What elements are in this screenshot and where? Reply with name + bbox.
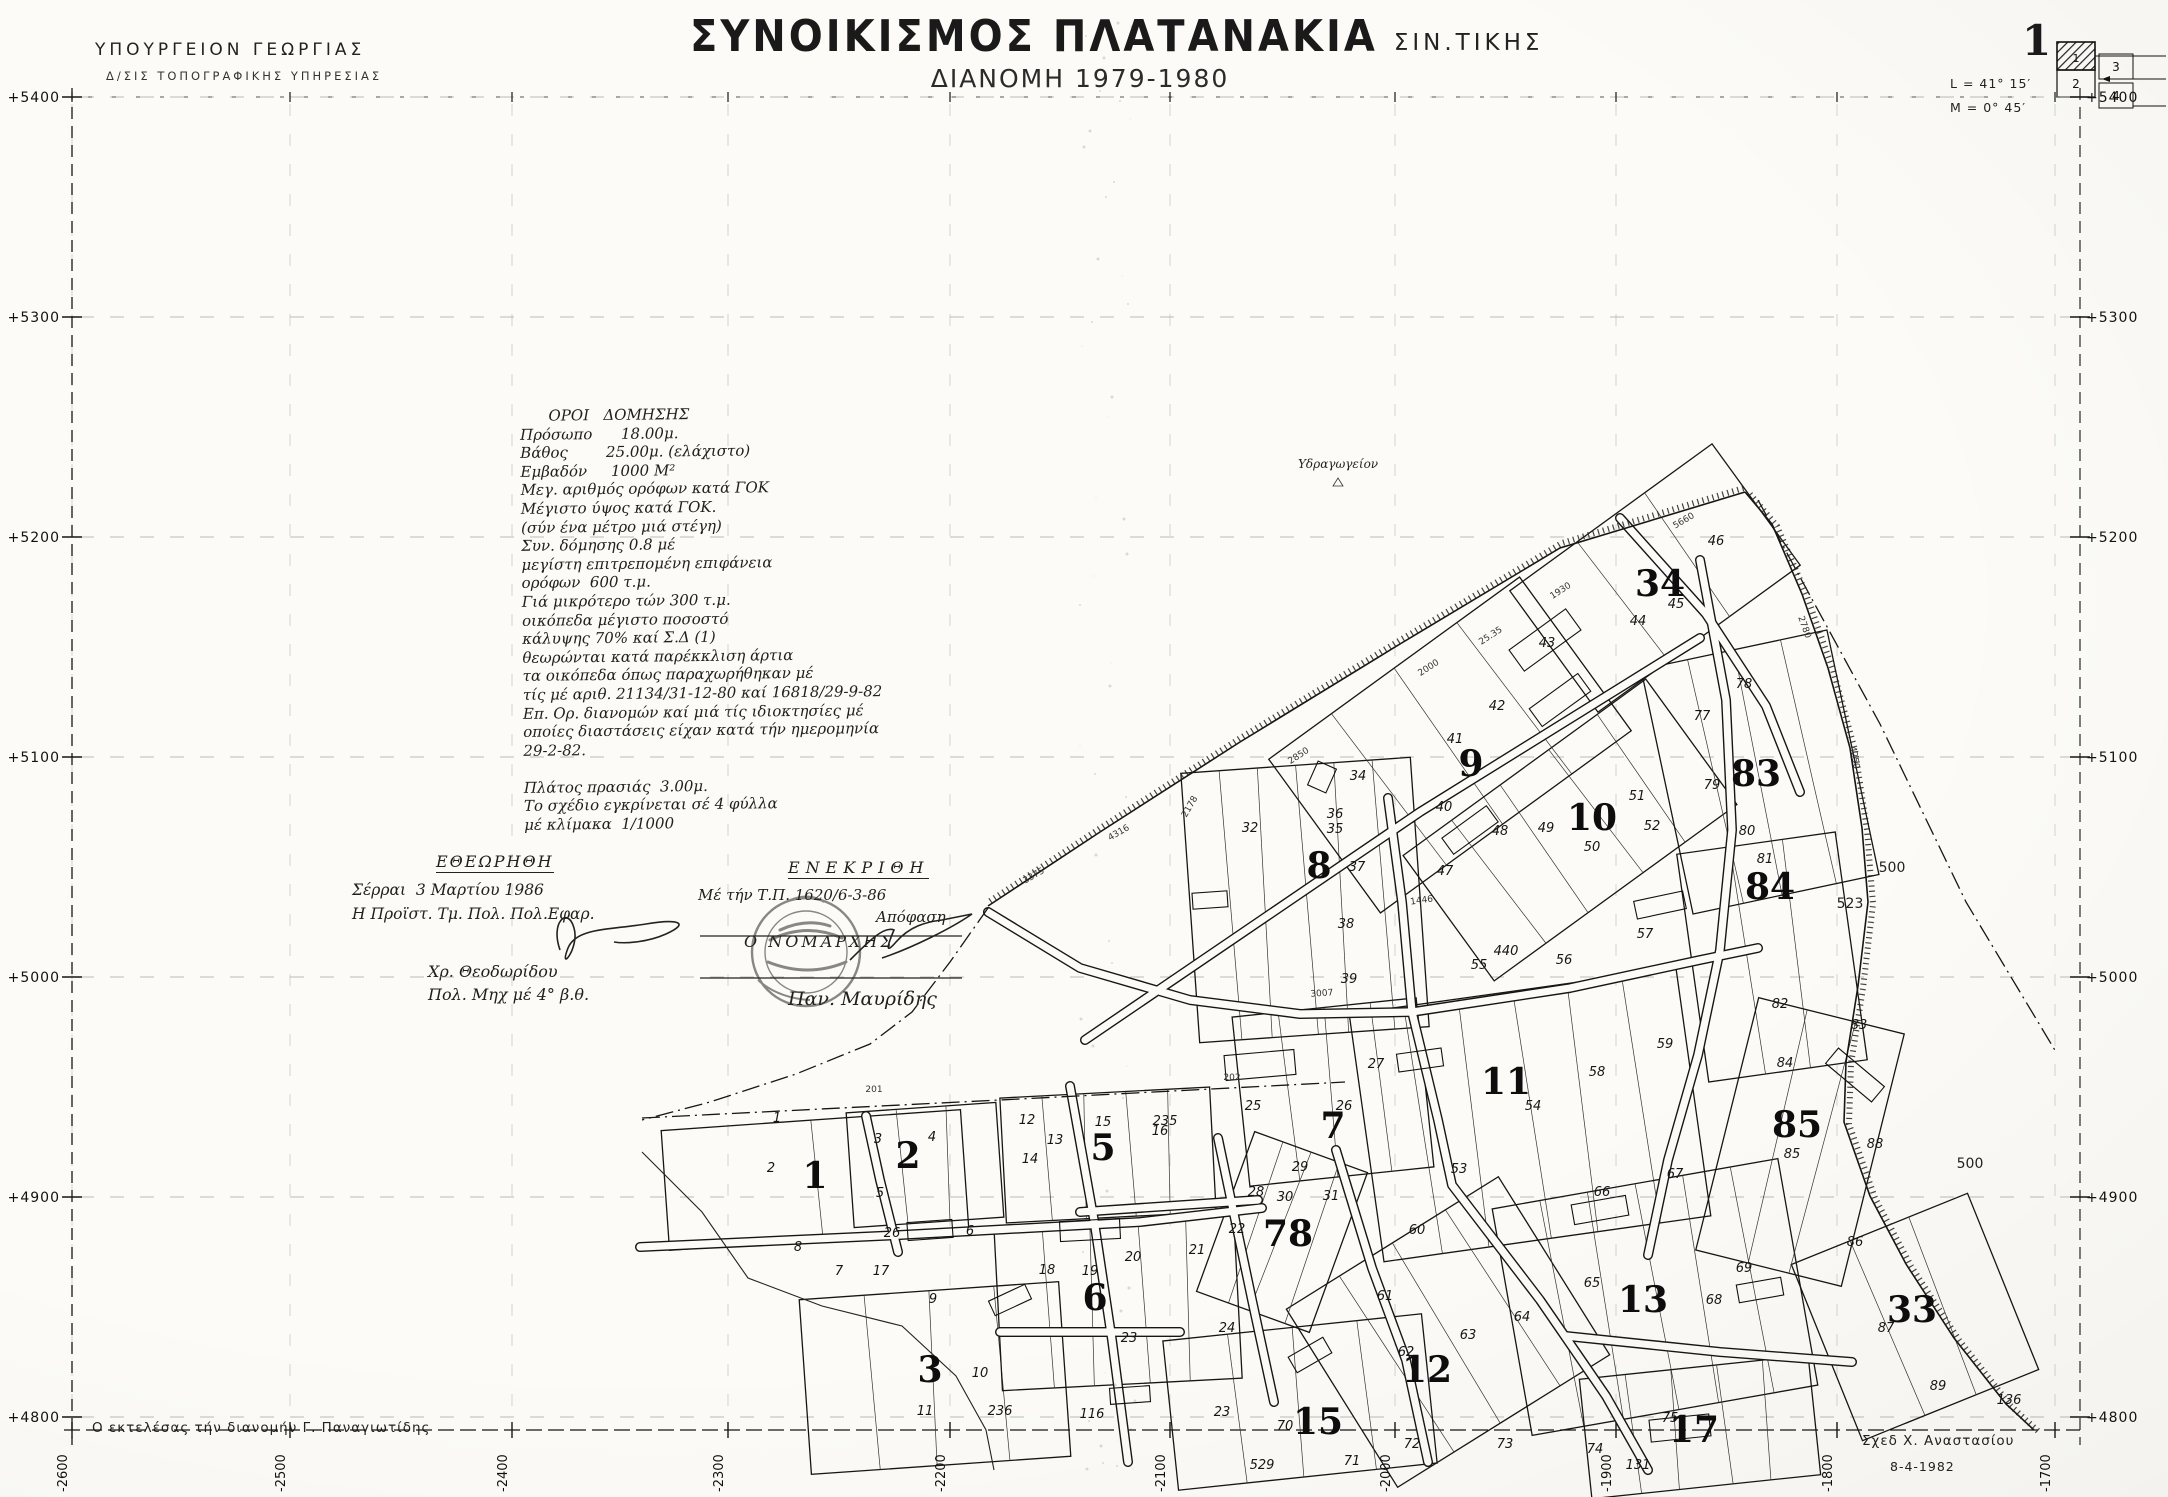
parcel-number-label: 88 <box>1867 1137 1884 1152</box>
grid-label-left: +4800 <box>8 1410 60 1426</box>
parcel-number-label: 77 <box>1694 709 1711 724</box>
area-number-label: 523 <box>1837 896 1864 912</box>
parcel-number-label: 28 <box>1248 1185 1265 1200</box>
building-footprint <box>1288 1337 1332 1373</box>
dimension-label: 202 <box>1223 1073 1240 1083</box>
area-number-label: 500 <box>1879 860 1906 876</box>
parcel-number-label: 1 <box>773 1111 781 1126</box>
scan-speckle <box>1120 1310 1123 1313</box>
parcel-number-label: 50 <box>1584 840 1601 855</box>
parcel-number-label: 40 <box>1436 800 1453 815</box>
parcel-number-label: 63 <box>1460 1328 1477 1343</box>
grid-label-bottom: -2600 <box>56 1454 71 1492</box>
signature-prefect <box>850 914 972 960</box>
block-number-label: 2 <box>895 1135 920 1177</box>
parcel-number-label: 4 <box>928 1130 936 1145</box>
parcel-line <box>1042 1223 1055 1388</box>
parcel-number-label: 66 <box>1594 1185 1611 1200</box>
parcel-number-label: 87 <box>1878 1321 1895 1336</box>
parcel-number-label: 35 <box>1327 822 1344 837</box>
scan-speckle <box>1108 940 1110 942</box>
scan-speckle <box>1108 417 1109 418</box>
official-stamp <box>752 896 860 1006</box>
parcel-number-label: 79 <box>1704 778 1721 793</box>
city-block <box>1232 998 1434 1186</box>
dimension-label: 3375 <box>1022 866 1047 886</box>
parcel-number-label: 529 <box>1250 1458 1275 1473</box>
building-footprint <box>1736 1277 1783 1303</box>
parcel-number-label: 54 <box>1525 1099 1542 1114</box>
scan-speckle <box>1127 303 1129 305</box>
parcel-number-label: 8 <box>794 1240 802 1255</box>
block-number-label: 33 <box>1887 1289 1937 1331</box>
parcel-number-label: 136 <box>1997 1393 2022 1408</box>
scan-speckle <box>1109 685 1112 688</box>
scan-speckle <box>1126 553 1129 556</box>
scan-speckle <box>1133 40 1135 42</box>
parcel-number-label: 61 <box>1377 1289 1394 1304</box>
parcel-number-label: 21 <box>1189 1243 1206 1258</box>
block-number-label: 11 <box>1481 1061 1531 1103</box>
scan-speckle <box>1091 1273 1092 1274</box>
parcel-number-label: 53 <box>1451 1162 1468 1177</box>
grid-label-bottom: -2500 <box>274 1454 289 1492</box>
grid-label-left: +5000 <box>8 970 60 986</box>
scan-speckle <box>1088 1420 1090 1422</box>
block-number-label: 78 <box>1263 1213 1313 1255</box>
scan-speckle <box>1082 1251 1084 1253</box>
scan-speckle <box>1111 962 1113 964</box>
dash-dot-road <box>642 908 988 1120</box>
block-number-label: 9 <box>1458 743 1483 785</box>
parcel-number-label: 89 <box>1930 1379 1947 1394</box>
parcel-number-label: 26 <box>884 1226 901 1241</box>
parcel-number-label: 13 <box>1047 1133 1064 1148</box>
building-footprint <box>1529 673 1590 726</box>
scan-speckle <box>1097 258 1100 261</box>
dimension-label: 2850 <box>1287 746 1312 767</box>
scan-speckle <box>1123 518 1126 521</box>
parcel-number-label: 3 <box>874 1132 882 1147</box>
block-outline <box>1232 998 1434 1186</box>
parcel-number-label: 74 <box>1587 1442 1604 1457</box>
parcel-number-label: 78 <box>1736 677 1753 692</box>
parcel-line <box>1622 975 1661 1223</box>
parcel-number-label: 73 <box>1497 1437 1514 1452</box>
building-footprint <box>1634 891 1687 919</box>
parcel-number-label: 36 <box>1327 807 1344 822</box>
parcel-number-label: 38 <box>1338 917 1355 932</box>
grid-label-bottom: -2400 <box>496 1454 511 1492</box>
parcel-line <box>1042 1096 1053 1221</box>
scan-speckle <box>1102 1462 1104 1464</box>
parcel-line <box>1370 1002 1392 1171</box>
dimension-label: 4250 <box>1847 746 1861 771</box>
scan-speckle <box>1116 1465 1118 1467</box>
parcel-number-label: 59 <box>1657 1037 1674 1052</box>
block-number-label: 85 <box>1772 1104 1822 1146</box>
grid-label-left: +5200 <box>8 530 60 546</box>
parcel-number-label: 57 <box>1637 927 1654 942</box>
parcel-number-label: 47 <box>1437 864 1454 879</box>
parcel-line <box>1253 768 1276 1038</box>
parcel-number-label: 60 <box>1409 1223 1426 1238</box>
parcel-number-label: 70 <box>1277 1419 1294 1434</box>
parcel-number-label: 25 <box>1245 1099 1262 1114</box>
stamp-mark <box>752 898 860 1006</box>
area-number-label: 500 <box>1957 1156 1984 1172</box>
dimension-label: 25.35 <box>1477 625 1504 647</box>
scan-speckle <box>1088 30 1089 31</box>
scan-speckle <box>1122 276 1123 277</box>
parcel-number-label: 26 <box>1336 1099 1353 1114</box>
scan-speckle <box>1103 57 1106 60</box>
parcel-number-label: 6 <box>966 1224 974 1239</box>
scan-speckle <box>1089 130 1092 133</box>
parcel-number-label: 116 <box>1080 1407 1105 1422</box>
map-sheet: ΥΠΟΥΡΓΕΙΟΝ ΓΕΩΡΓΙΑΣ Δ/ΣΙΣ ΤΟΠΟΓΡΑΦΙΚΗΣ Υ… <box>0 0 2168 1497</box>
parcel-number-label: 2 <box>767 1161 775 1176</box>
parcel-line <box>1717 1365 1734 1485</box>
dimension-label: 5660 <box>1672 511 1697 531</box>
parcel-line <box>1138 1218 1151 1383</box>
block-number-label: 6 <box>1082 1277 1107 1319</box>
grid-label-right: +5000 <box>2086 970 2138 986</box>
scan-speckle <box>1102 21 1103 22</box>
map-canvas: +5400+5400+5300+5300+5200+5200+5100+5100… <box>0 0 2168 1497</box>
scan-speckle <box>1096 1117 1098 1119</box>
dimension-label: 1930 <box>1549 581 1574 602</box>
parcel-number-label: 11 <box>917 1404 934 1419</box>
parcel-number-label: 10 <box>972 1366 989 1381</box>
parcel-number-label: 29 <box>1292 1160 1309 1175</box>
scan-speckle <box>1113 1208 1114 1209</box>
scan-speckle <box>1099 90 1101 92</box>
parcel-number-label: 9 <box>929 1292 937 1307</box>
parcel-line <box>1331 711 1446 867</box>
building-footprint <box>1192 891 1228 909</box>
parcel-number-label: 32 <box>1242 821 1259 836</box>
scan-speckle <box>1119 100 1121 102</box>
scan-speckle <box>1086 1468 1089 1471</box>
dimension-label: 201 <box>865 1085 882 1095</box>
parcel-number-label: 44 <box>1630 614 1647 629</box>
parcel-number-label: 86 <box>1847 1235 1864 1250</box>
grid-label-bottom: -1800 <box>1821 1454 1836 1492</box>
grid-label-bottom: -1900 <box>1600 1454 1615 1492</box>
parcel-number-label: 37 <box>1349 860 1366 875</box>
parcel-number-label: 131 <box>1626 1458 1651 1473</box>
parcel-number-label: 20 <box>1125 1250 1142 1265</box>
parcel-number-label: 45 <box>1668 597 1685 612</box>
scan-speckle <box>1091 321 1093 323</box>
scan-speckle <box>1134 1400 1137 1403</box>
block-number-label: 1 <box>802 1155 827 1197</box>
parcel-number-label: 27 <box>1368 1057 1385 1072</box>
scan-speckle <box>1133 1469 1134 1470</box>
place-symbol <box>1333 478 1343 486</box>
boundary-hachures <box>990 487 1747 901</box>
parcel-number-label: 5 <box>876 1186 884 1201</box>
block-number-label: 83 <box>1731 753 1781 795</box>
parcel-number-label: 440 <box>1494 944 1519 959</box>
parcel-number-label: 51 <box>1629 789 1646 804</box>
parcel-number-label: 31 <box>1323 1189 1340 1204</box>
scan-speckle <box>1116 51 1117 52</box>
parcel-number-label: 65 <box>1584 1276 1601 1291</box>
parcel-line <box>1330 763 1353 1033</box>
scan-speckle <box>1094 773 1096 775</box>
scan-speckle <box>1130 119 1131 120</box>
block-number-label: 13 <box>1618 1279 1668 1321</box>
parcel-number-label: 67 <box>1667 1167 1684 1182</box>
scan-speckle <box>1105 1373 1106 1374</box>
parcel-line <box>1389 1243 1504 1423</box>
parcel-number-label: 17 <box>873 1264 890 1279</box>
scan-speckle <box>1106 1190 1109 1193</box>
parcel-number-label: 48 <box>1492 824 1509 839</box>
parcel-number-label: 23 <box>1214 1405 1231 1420</box>
scan-speckle <box>1080 1018 1083 1021</box>
scan-speckle <box>1096 498 1097 499</box>
block-number-label: 10 <box>1567 797 1617 839</box>
parcel-number-label: 62 <box>1398 1345 1415 1360</box>
parcel-number-label: 85 <box>1784 1147 1801 1162</box>
parcel-number-label: 75 <box>1662 1411 1679 1426</box>
parcel-number-label: 72 <box>1404 1437 1421 1452</box>
grid-label-left: +5100 <box>8 750 60 766</box>
scan-speckle <box>1114 1384 1117 1387</box>
scan-speckle <box>1125 796 1127 798</box>
scan-speckle <box>1100 1445 1103 1448</box>
parcel-number-label: 22 <box>1229 1222 1246 1237</box>
parcel-line <box>1126 1091 1137 1216</box>
grid-label-left: +5300 <box>8 310 60 326</box>
parcel-number-label: 34 <box>1350 769 1367 784</box>
parcel-number-label: 64 <box>1514 1310 1531 1325</box>
grid-label-right: +5400 <box>2086 90 2138 106</box>
signature-theodoridou <box>557 918 679 959</box>
parcel-number-label: 14 <box>1022 1152 1039 1167</box>
parcel-number-label: 80 <box>1739 824 1756 839</box>
dimension-label: 3007 <box>1310 988 1334 1000</box>
grid-label-right: +4900 <box>2086 1190 2138 1206</box>
parcel-number-label: 49 <box>1538 821 1555 836</box>
parcel-number-label: 83 <box>1851 1018 1868 1033</box>
parcel-number-label: 30 <box>1277 1190 1294 1205</box>
parcel-line <box>1357 1320 1377 1470</box>
parcel-number-label: 24 <box>1219 1321 1236 1336</box>
parcel-number-label: 56 <box>1556 953 1573 968</box>
scan-speckle <box>1083 146 1086 149</box>
scan-speckle <box>1082 346 1083 347</box>
grid-label-right: +5100 <box>2086 750 2138 766</box>
parcel-number-label: 84 <box>1777 1056 1794 1071</box>
grid-label-bottom: -2200 <box>934 1454 949 1492</box>
scan-speckle <box>1117 22 1120 25</box>
grid-label-right: +5200 <box>2086 530 2138 546</box>
scan-speckle <box>1105 196 1107 198</box>
parcel-number-label: 69 <box>1736 1261 1753 1276</box>
scan-speckle <box>1092 1045 1095 1048</box>
stamp-mark <box>768 923 846 970</box>
parcel-number-label: 39 <box>1341 972 1358 987</box>
block-number-label: 15 <box>1293 1401 1343 1443</box>
grid-label-left: +4900 <box>8 1190 60 1206</box>
grid-label-bottom: -2000 <box>1379 1454 1394 1492</box>
parcel-number-label: 41 <box>1447 732 1464 747</box>
parcel-number-label: 19 <box>1082 1264 1099 1279</box>
block-number-label: 3 <box>917 1349 942 1391</box>
scan-speckle <box>1080 745 1081 746</box>
grid-label-right: +4800 <box>2086 1410 2138 1426</box>
parcel-number-label: 16 <box>1152 1124 1169 1139</box>
parcel-line <box>1228 1334 1248 1484</box>
landmark-diamond <box>1308 761 1337 793</box>
grid-label-bottom: -1700 <box>2039 1454 2054 1492</box>
parcel-number-label: 46 <box>1708 534 1725 549</box>
parcel-line <box>864 1295 880 1470</box>
grid-label-right: +5300 <box>2086 310 2138 326</box>
parcel-line <box>942 1106 954 1221</box>
grid-label-bottom: -2300 <box>712 1454 727 1492</box>
parcel-number-label: 43 <box>1539 636 1556 651</box>
block-number-label: 8 <box>1306 845 1331 887</box>
scan-speckle <box>1095 854 1098 857</box>
scan-speckle <box>1128 1287 1131 1290</box>
block-number-label: 5 <box>1090 1127 1115 1169</box>
parcel-number-label: 82 <box>1772 997 1789 1012</box>
scan-speckle <box>1113 181 1115 183</box>
grid-label-bottom: -2100 <box>1154 1454 1169 1492</box>
scan-speckle <box>1125 833 1126 834</box>
parcel-number-label: 18 <box>1039 1263 1056 1278</box>
parcel-line <box>1164 1089 1175 1214</box>
scan-speckle <box>1085 1410 1086 1411</box>
parcel-line <box>1758 1360 1775 1480</box>
scan-speckle <box>1094 576 1095 577</box>
parcel-number-label: 12 <box>1019 1113 1036 1128</box>
scan-speckle <box>1130 1428 1132 1430</box>
parcel-number-label: 236 <box>988 1404 1013 1419</box>
parcel-line <box>1182 1216 1195 1381</box>
scan-speckle <box>1122 1097 1124 1099</box>
scan-speckle <box>1079 604 1081 606</box>
parcel-number-label: 68 <box>1706 1293 1723 1308</box>
scan-speckle <box>1099 1325 1100 1326</box>
scan-speckle <box>1111 663 1112 664</box>
parcel-number-label: 81 <box>1757 852 1774 867</box>
parcel-number-label: 7 <box>835 1264 844 1279</box>
scan-speckle <box>1119 1440 1120 1441</box>
parcel-number-label: 71 <box>1344 1454 1361 1469</box>
parcel-number-label: 52 <box>1644 819 1661 834</box>
terrain-line <box>642 1152 994 1470</box>
parcel-number-label: 55 <box>1471 958 1488 973</box>
parcel-number-label: 23 <box>1121 1331 1138 1346</box>
block-number-label: 84 <box>1745 866 1795 908</box>
parcel-number-label: 58 <box>1589 1065 1606 1080</box>
scan-speckle <box>1131 26 1134 29</box>
street-core <box>1218 1138 1274 1402</box>
grid-label-left: +5400 <box>8 90 60 106</box>
scan-speckle <box>1085 35 1087 37</box>
scan-speckle <box>1127 1066 1128 1067</box>
scan-speckle <box>1111 396 1114 399</box>
place-name-label: Υδραγωγείον <box>1298 457 1378 471</box>
dimension-label: 2000 <box>1417 658 1442 679</box>
parcel-number-label: 42 <box>1489 699 1506 714</box>
dimension-label: 1446 <box>1410 894 1434 907</box>
